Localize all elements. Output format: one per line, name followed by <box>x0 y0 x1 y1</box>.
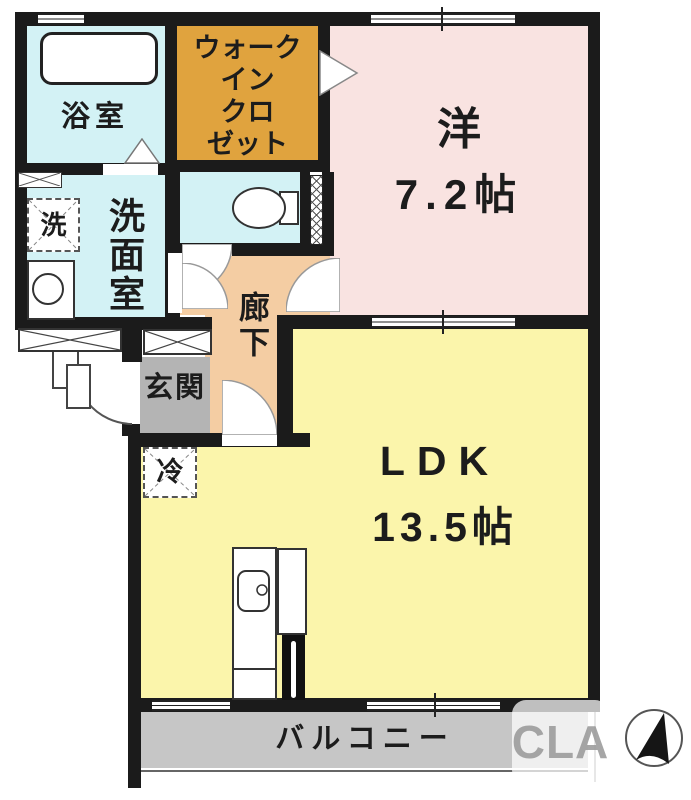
bathtub <box>40 32 158 85</box>
floorplan: 洗 冷 浴室 ウォーク イン クロ ゼット 洋 7.2帖 洗面室 廊下 玄関 L… <box>0 0 691 800</box>
window-bottom-left <box>152 700 230 711</box>
wall-right <box>588 12 600 712</box>
door-arc-ldk <box>222 380 277 435</box>
wall-ldk-left <box>128 433 141 788</box>
door-arc-western <box>286 258 340 312</box>
wic-label: ウォーク イン クロ ゼット <box>177 32 318 160</box>
window-top-left <box>38 13 84 25</box>
western-room-label: 洋 <box>330 108 588 152</box>
ldk-size: 13.5帖 <box>295 507 595 548</box>
kitchen-cabinet <box>277 548 307 635</box>
window-tick <box>441 7 443 31</box>
wall-wic-bottom <box>177 160 330 172</box>
kitchen-counter-divider <box>234 668 275 670</box>
closet-door-arrow-icon <box>319 50 359 96</box>
bathroom-door-icon <box>124 138 160 164</box>
window-tick <box>442 310 444 334</box>
washer-pan <box>27 260 75 320</box>
compass-north-icon <box>622 704 686 772</box>
entrance-door-leaf <box>66 364 91 409</box>
washroom-label: 洗面室 <box>98 187 142 323</box>
window-top-western <box>371 13 515 25</box>
kitchen-sink <box>237 570 270 612</box>
door-gap-bathroom <box>103 164 158 175</box>
wall-corridor-right <box>277 315 293 447</box>
vent-hatch <box>18 172 62 188</box>
storage-box <box>18 328 122 352</box>
pipe-space-hatch <box>310 175 323 245</box>
shoe-cabinet <box>143 329 212 355</box>
balcony-label: バルコニー <box>200 725 530 754</box>
door-gap-ldk <box>222 434 277 446</box>
door-arc-washroom <box>182 263 228 309</box>
entrance-label: 玄関 <box>138 374 212 403</box>
door-gap-washroom <box>168 253 182 313</box>
western-room-size: 7.2帖 <box>330 174 588 216</box>
wall-entrance-bottom <box>130 433 310 447</box>
ldk-label: LDK <box>300 441 580 482</box>
window-tick <box>434 693 436 717</box>
bathroom-label: 浴室 <box>48 103 142 132</box>
wall-bath-wic <box>165 26 177 172</box>
toilet <box>230 183 302 233</box>
corridor-label: 廊下 <box>227 286 267 366</box>
watermark-logo: CLA <box>512 700 609 784</box>
washer-label: 洗 <box>27 212 80 238</box>
refrigerator-label: 冷 <box>143 459 197 486</box>
kitchen-stub-line <box>291 641 296 698</box>
